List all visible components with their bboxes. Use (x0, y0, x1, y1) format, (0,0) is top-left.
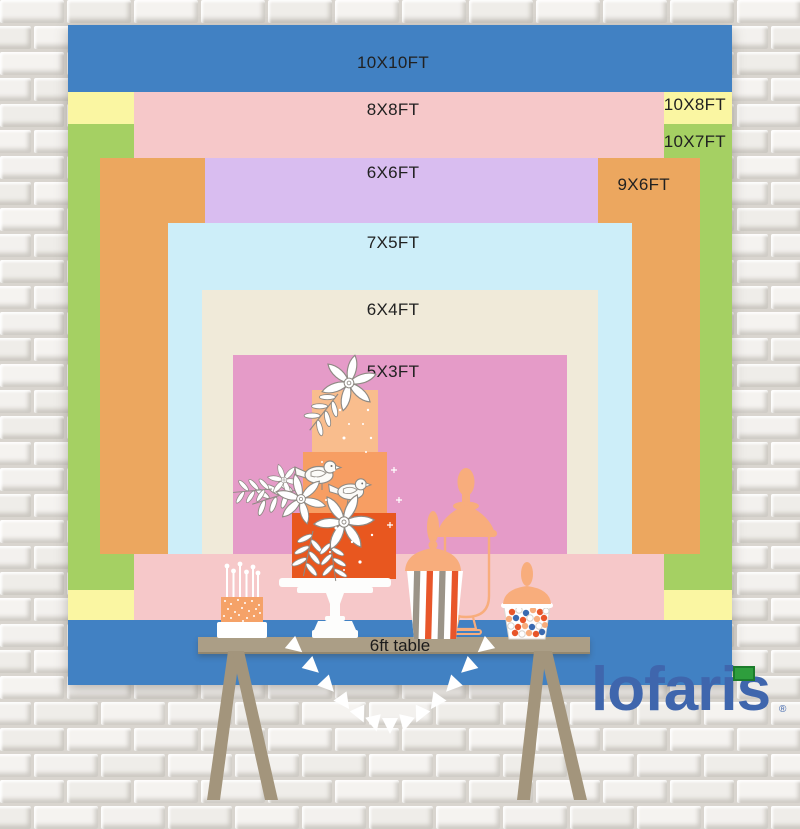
size-label-6x4ft: 6X4FT (68, 300, 718, 320)
size-label-5x3ft: 5X3FT (68, 362, 718, 382)
size-label-10x10ft: 10X10FT (68, 53, 718, 73)
size-label-10x8ft: 10X8FT (664, 95, 726, 115)
size-label-7x5ft: 7X5FT (68, 233, 718, 253)
size-label-10x7ft: 10X7FT (664, 132, 726, 152)
table-size-label: 6ft table (330, 636, 470, 656)
size-label-8x8ft: 8X8FT (68, 100, 718, 120)
lofaris-flag-icon (733, 666, 755, 681)
backdrop-size-chart: 10X10FT 8X8FT 10X8FT 10X7FT 6X6FT 9X6FT … (68, 25, 732, 685)
backdrop-rect-5x3ft (233, 355, 567, 554)
registered-trademark: ® (779, 704, 786, 715)
size-label-9x6ft: 9X6FT (617, 175, 670, 195)
